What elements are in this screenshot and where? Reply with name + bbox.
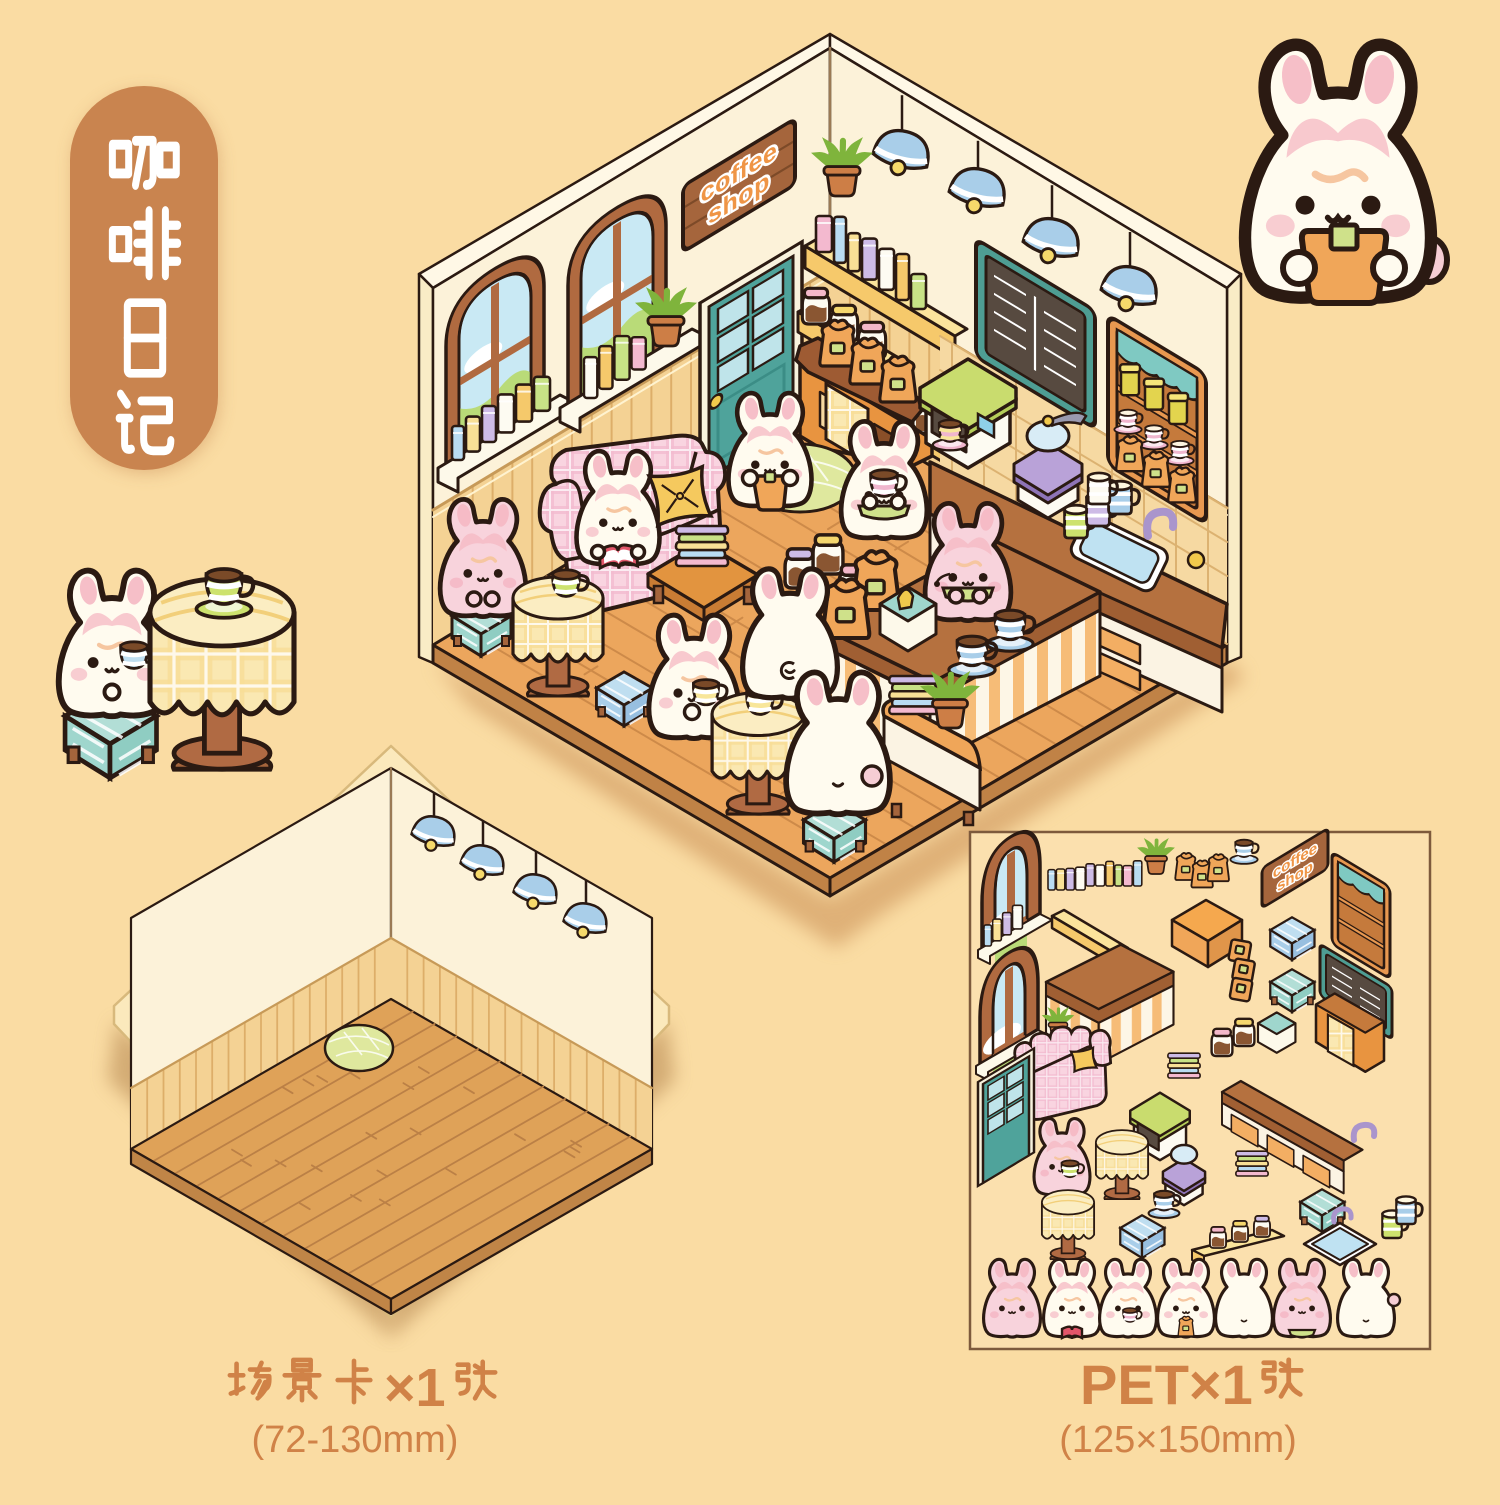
- svg-text:PET×1: PET×1: [1080, 1353, 1253, 1416]
- svg-text:×1: ×1: [384, 1358, 446, 1418]
- svg-text:(125×150mm): (125×150mm): [1059, 1419, 1297, 1461]
- svg-text:(72-130mm): (72-130mm): [252, 1419, 459, 1461]
